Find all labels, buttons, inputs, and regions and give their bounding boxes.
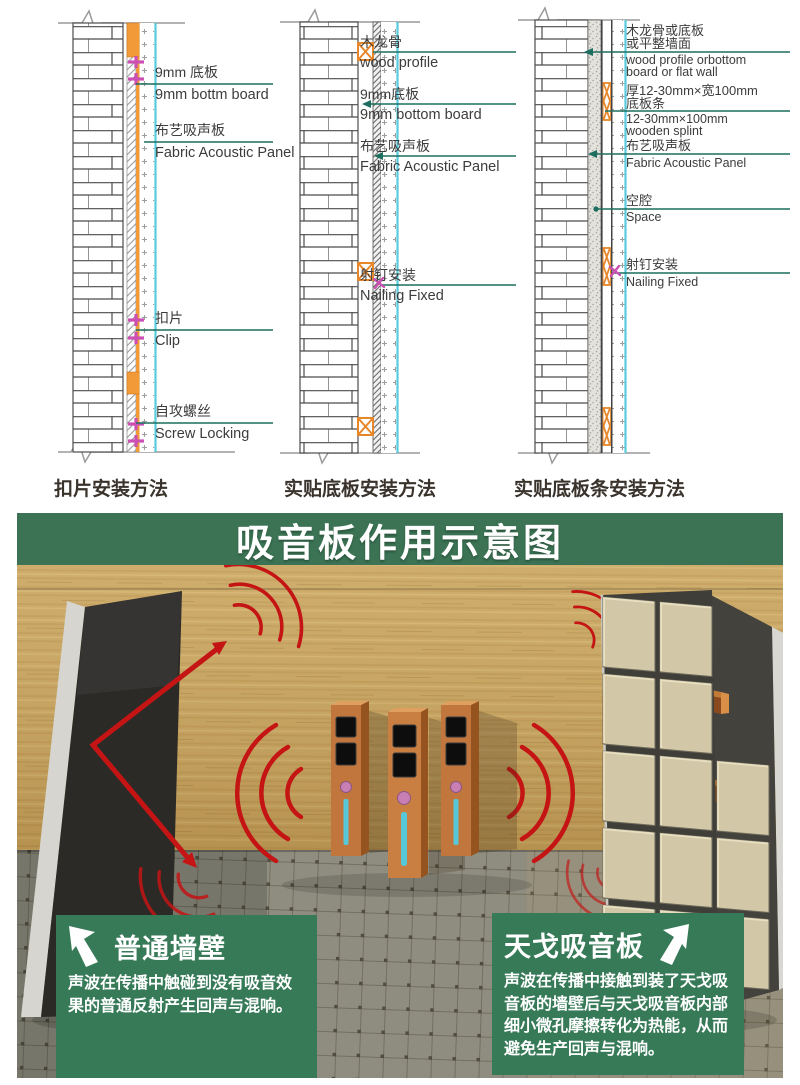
acoustic-function-poster: 吸音板作用示意图 <box>17 513 783 1078</box>
acoustic-panel-card: 天戈吸音板 声波在传播中接触到装了天戈吸音板的墙壁后与天戈吸音板内部细小微孔摩擦… <box>492 913 744 1075</box>
card-body: 声波在传播中接触到装了天戈吸音板的墙壁后与天戈吸音板内部细小微孔摩擦转化为热能，… <box>504 971 732 1062</box>
poster-title: 吸音板作用示意图 <box>236 512 564 567</box>
label-fabric-panel: 布艺吸声板 <box>626 139 691 152</box>
speaker-right <box>441 701 517 856</box>
label-space: 空腔 <box>626 194 652 207</box>
base-board-layer <box>588 20 601 453</box>
diagram-caption: 实贴底板条安装方法 <box>514 474 685 501</box>
diagram-clip-installation: 9mm 底板 9mm bottm board 布艺吸声板 Fabric Acou… <box>40 0 278 510</box>
card-title: 普通墙壁 <box>114 927 226 966</box>
speakers <box>331 701 517 878</box>
card-title: 天戈吸音板 <box>504 925 644 964</box>
label-clip: 扣片 <box>155 309 183 327</box>
brick-wall <box>73 23 123 452</box>
label-fabric-panel: 布艺吸声板 <box>360 137 430 155</box>
label-9mm-board: 9mm 底板 <box>155 63 218 81</box>
plain-wall-card: 普通墙壁 声波在传播中触碰到没有吸音效果的普通反射产生回声与混响。 <box>56 915 317 1078</box>
product-infographic: 9mm 底板 9mm bottm board 布艺吸声板 Fabric Acou… <box>0 0 800 1085</box>
acoustic-panel-layer <box>613 20 625 453</box>
label-nailing: 射钉安装 <box>360 266 416 284</box>
furring-block <box>127 23 140 57</box>
card-body: 声波在传播中触碰到没有吸音效果的普通反射产生回声与混响。 <box>68 973 305 1018</box>
diagram-strip-installation: 木龙骨或底板 或平整墙面 wood profile orbottom board… <box>518 0 800 510</box>
brick-wall <box>535 20 588 453</box>
room-3d-scene: 普通墙壁 声波在传播中触碰到没有吸音效果的普通反射产生回声与混响。 天戈吸音板 … <box>17 565 783 1078</box>
label-fabric-panel: 布艺吸声板 <box>155 121 225 139</box>
diagram-caption: 实贴底板安装方法 <box>284 474 436 501</box>
label-wood-profile: 木龙骨 <box>360 33 402 51</box>
label-screw: 自攻螺丝 <box>155 402 211 420</box>
diagram-board-installation: 木龙骨 wood profile 9mm底板 9mm bottom board … <box>280 0 520 510</box>
poster-title-banner: 吸音板作用示意图 <box>17 513 783 565</box>
up-right-arrow-icon <box>654 923 690 965</box>
installation-diagrams-section: 9mm 底板 9mm bottm board 布艺吸声板 Fabric Acou… <box>0 0 800 510</box>
label-9mm-board: 9mm底板 <box>360 85 419 103</box>
up-left-arrow-icon <box>68 925 104 967</box>
label-nailing: 射钉安装 <box>626 258 678 271</box>
diagram-caption: 扣片安装方法 <box>54 474 168 501</box>
acoustic-panel-layer <box>140 23 155 452</box>
wooden-splint-symbols <box>604 83 611 445</box>
brick-wall <box>300 22 358 453</box>
